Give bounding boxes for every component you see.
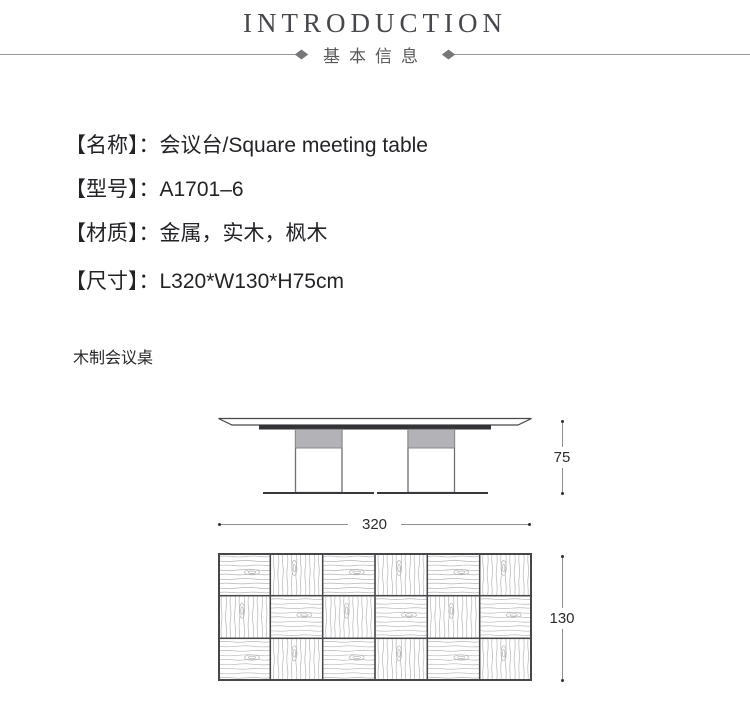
wood-panel-h [218,553,270,596]
wood-panel-h [323,638,375,681]
wood-panel-h [480,596,532,639]
spec-line: 【型号】：A1701–6 [65,166,428,210]
dimension-endpoint-icon [561,679,564,682]
wood-panel-v [323,596,375,639]
wood-panel-h [427,553,479,596]
divider-line-right [452,54,750,55]
wood-panel-v [218,596,270,639]
wood-panel-v [480,553,532,596]
tabletop-slab [219,419,532,426]
divider-line-left [0,54,298,55]
right-leg-band [408,430,455,449]
height-dimension: 75 [548,420,576,495]
width-dimension-label: 320 [348,517,401,532]
dimension-endpoint-icon [561,492,564,495]
width-dimension: 320 [218,517,531,531]
depth-dimension: 130 [544,555,580,682]
left-leg-band [296,430,343,449]
dimension-line [562,423,563,447]
wood-panel-v [375,638,427,681]
wood-panel-v [270,638,322,681]
dimension-line [562,558,563,608]
page-title: INTRODUCTION [0,8,750,39]
drawing-caption: 木制会议桌 [73,344,153,368]
wood-panel-h [270,596,322,639]
wood-panel-h [323,553,375,596]
wood-panel-v [480,638,532,681]
product-spec-list: 【名称】：会议台/Square meeting table【型号】：A1701–… [65,122,428,302]
tabletop-underframe [259,425,491,430]
top-view-grid-cells [218,553,532,681]
dimension-line [221,524,348,525]
table-top-view-drawing [218,553,532,681]
wood-panel-v [375,553,427,596]
height-dimension-label: 75 [554,447,571,468]
spec-line: 【名称】：会议台/Square meeting table [65,122,428,166]
wood-panel-v [427,596,479,639]
subtitle-divider: 基本信息 [0,44,750,64]
wood-panel-h [218,638,270,681]
dimension-endpoint-icon [528,523,531,526]
wood-panel-h [427,638,479,681]
dimension-line [562,629,563,679]
depth-dimension-label: 130 [549,608,574,629]
spec-line: 【尺寸】：L320*W130*H75cm [65,258,428,302]
table-side-view-drawing [218,417,532,495]
spec-line: 【材质】：金属，实木，枫木 [65,210,428,254]
wood-panel-v [270,553,322,596]
product-introduction-page: INTRODUCTION 基本信息 【名称】：会议台/Square meetin… [0,0,750,727]
dimension-line [562,468,563,492]
section-subtitle: 基本信息 [305,42,445,67]
wood-panel-h [375,596,427,639]
dimension-line [401,524,528,525]
